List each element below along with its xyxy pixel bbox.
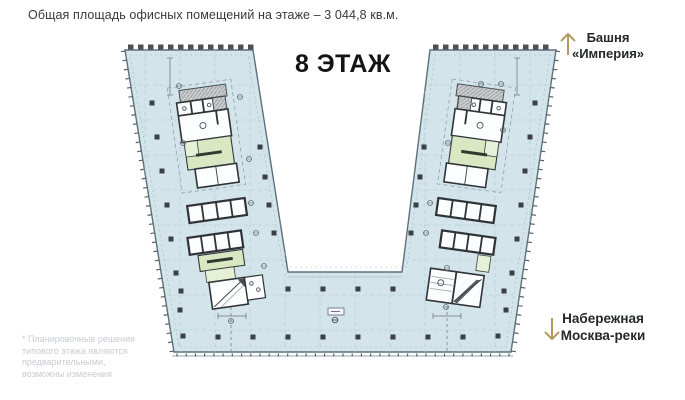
down-arrow-icon xyxy=(540,316,564,343)
floor-label: 8 ЭТАЖ xyxy=(283,50,403,79)
slide: Общая площадь офисных помещений на этаже… xyxy=(0,0,685,400)
embankment-annotation: Набережная Москва-реки xyxy=(540,310,666,344)
tower-annotation: Башня «Империя» xyxy=(556,30,660,62)
up-arrow-icon xyxy=(556,30,580,57)
footnote: * Планировочные решения типового этажа я… xyxy=(22,334,142,380)
page-title: Общая площадь офисных помещений на этаже… xyxy=(28,8,398,22)
